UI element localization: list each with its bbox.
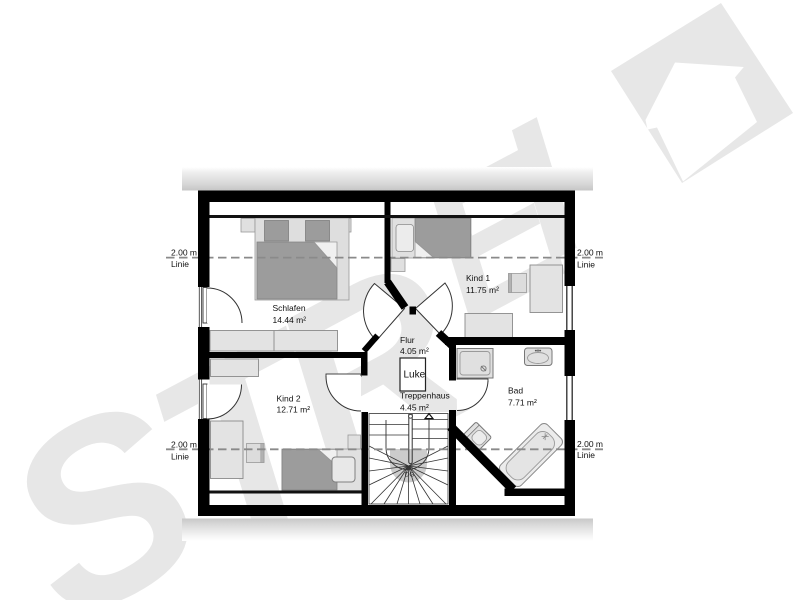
svg-text:12.71 m²: 12.71 m² <box>277 405 311 415</box>
svg-text:2.00 m: 2.00 m <box>171 440 197 450</box>
svg-text:Bad: Bad <box>508 386 523 396</box>
svg-text:Kind 2: Kind 2 <box>277 394 301 404</box>
svg-text:DG: DG <box>405 472 415 479</box>
svg-text:Linie: Linie <box>577 260 595 270</box>
svg-text:Luke: Luke <box>404 370 426 381</box>
svg-text:14.44 m²: 14.44 m² <box>273 315 307 325</box>
svg-text:2.00 m: 2.00 m <box>577 248 603 258</box>
svg-text:Schlafen: Schlafen <box>273 303 306 313</box>
svg-text:4.45 m²: 4.45 m² <box>400 403 429 413</box>
svg-text:Treppenhaus: Treppenhaus <box>400 391 450 401</box>
svg-text:Linie: Linie <box>171 259 189 269</box>
svg-text:11.75 m²: 11.75 m² <box>466 285 499 295</box>
svg-text:2.00 m: 2.00 m <box>171 248 197 258</box>
svg-text:2.00 m: 2.00 m <box>577 439 603 449</box>
svg-text:Linie: Linie <box>577 450 595 460</box>
svg-text:Linie: Linie <box>171 452 189 462</box>
svg-text:Kind 1: Kind 1 <box>466 273 490 283</box>
svg-text:Flur: Flur <box>400 335 415 345</box>
svg-text:4.05 m²: 4.05 m² <box>400 346 429 356</box>
svg-text:7.71 m²: 7.71 m² <box>508 398 537 408</box>
